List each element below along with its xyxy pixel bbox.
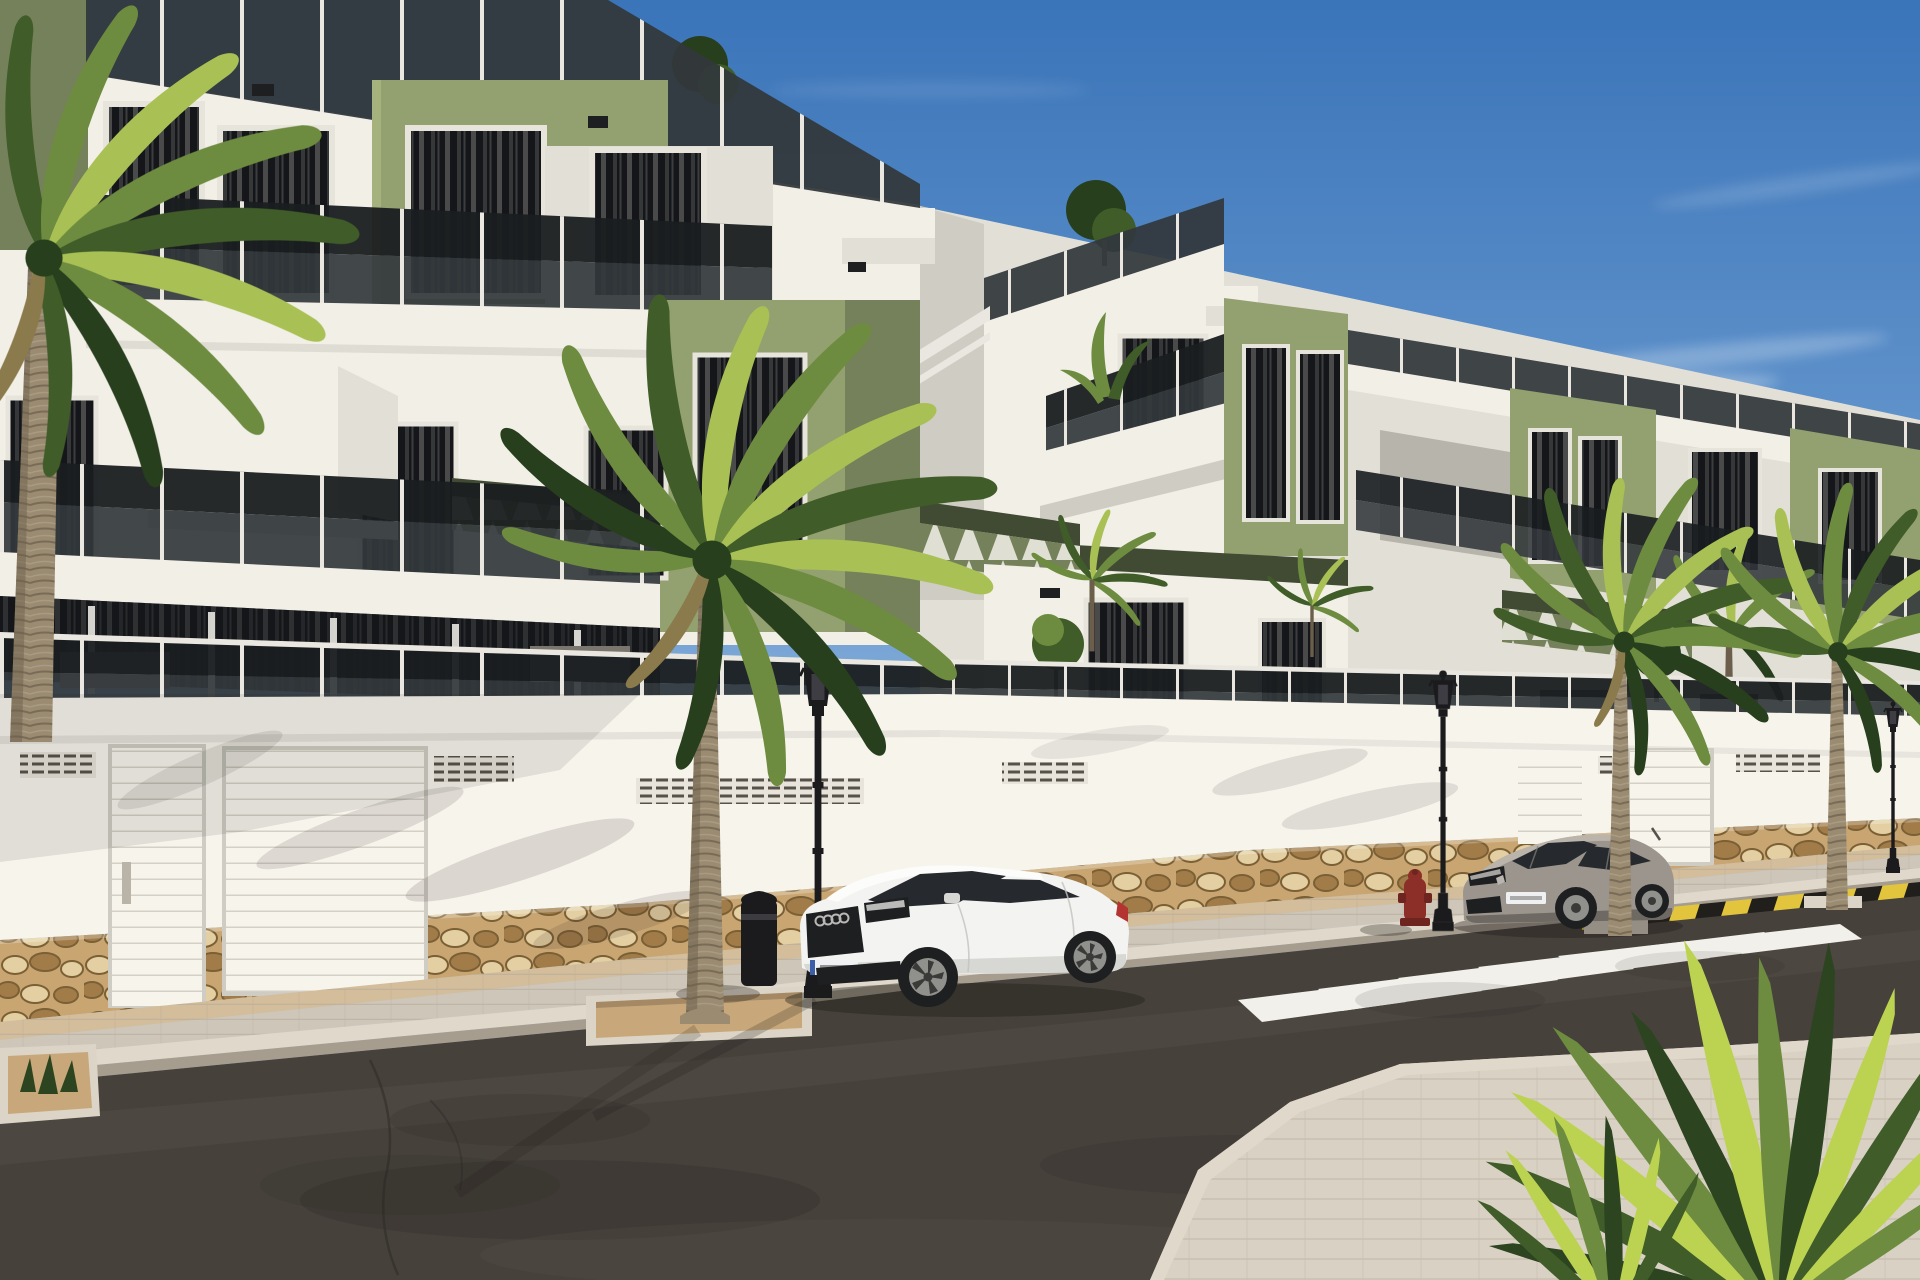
wheel: [898, 947, 958, 1007]
wheel: [1635, 884, 1669, 918]
side-mirror: [944, 893, 960, 903]
wheel: [1064, 931, 1116, 983]
garage-door: [1518, 752, 1582, 844]
planter: [0, 1044, 100, 1124]
window: [1298, 352, 1342, 522]
window: [1244, 346, 1288, 520]
scene-canvas: [0, 0, 1920, 1280]
render-scene: Sunny photorealistic render of a modern …: [0, 0, 1920, 1280]
litter-bin: [741, 891, 777, 986]
wheel: [1555, 887, 1597, 929]
